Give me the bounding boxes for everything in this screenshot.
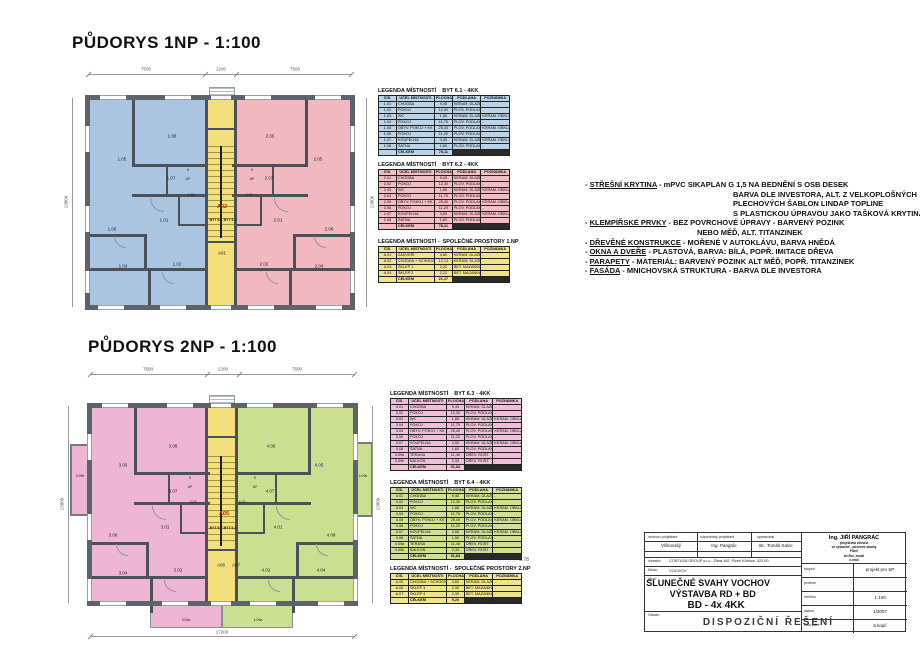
firm-address-lines: projektová činnostve výstavbě - pozemní … — [801, 541, 907, 562]
legend-cell: OBÝV. POKOJ + KK — [408, 429, 446, 435]
legend-cell: OBÝV. POKOJ + KK — [408, 518, 446, 524]
room-label: AP — [250, 177, 255, 181]
investor-value: CORTUSA GROUP s.r.o., Žitná 162, Plzeň K… — [669, 559, 768, 563]
legend-cell — [391, 465, 409, 471]
room-label: BYT 6.1 — [210, 218, 223, 222]
legend-header-cell: POZNÁMKA — [481, 96, 510, 102]
legend-cell: KERAM. OBKLAD v=2000 — [481, 212, 510, 218]
divider — [645, 575, 801, 576]
legend-cell: PLOV. PODLAHA — [452, 132, 481, 138]
legend-cell: BET. MAZANINA — [452, 265, 481, 271]
divider — [801, 563, 907, 564]
window — [211, 305, 231, 310]
drawing-sheet: PŮDORYS 1NP - 1:100 PŮDORYS 2NP - 1:100 … — [0, 0, 920, 649]
legend-cell: PLOV. PODLAHA — [452, 144, 481, 150]
note-line: S PLASTICKOU ÚPRAVOU JAKO TAŠKOVÁ KRYTIN… — [733, 209, 915, 219]
tb-row-label: datum — [804, 609, 814, 613]
legend-cell: KERAM. OBKLAD - KUCH. KOUT — [481, 126, 510, 132]
legend-cell: 78,11 — [434, 224, 452, 230]
dimension-value: 7500 — [292, 367, 302, 372]
dimension-value: 13800 — [60, 498, 65, 511]
legend-byt-6-4: LEGENDA MÍSTNOSTÍ BYT 6.4 - 4KKČÍS.ÚČEL … — [390, 480, 522, 560]
legend-cell: 91,84 — [446, 465, 464, 471]
legend-cell: DŘEV. ROŠT — [464, 548, 493, 554]
legend-header-cell: ÚČEL MÍSTNOSTI — [408, 399, 446, 405]
room-label: A07 — [232, 563, 240, 568]
legend-cell — [452, 224, 481, 230]
legend-cell: PLOV. PODLAHA — [464, 536, 493, 542]
drawn-by-value: Bc. Tomáš Kaloc — [759, 543, 792, 548]
room-label: 4.01 — [274, 525, 283, 530]
legend-cell: KERAM. DLAŽBA — [464, 441, 493, 447]
legend-cell — [379, 150, 397, 156]
legend-cell: DŘEV. ROŠT — [464, 542, 493, 548]
window — [100, 95, 126, 100]
room-label: K — [254, 476, 256, 480]
outer-wall — [85, 95, 355, 310]
legend-cell — [452, 277, 481, 283]
resp-designer-label: odpovědný projektant — [700, 535, 734, 539]
divider — [645, 557, 801, 558]
legend-header-cell: POZNÁMKA — [481, 170, 510, 176]
title-block: vedoucí projektant odpovědný projektant … — [644, 532, 906, 632]
legend-cell: BET. MAZANINA — [464, 586, 493, 592]
dimension-line — [72, 98, 73, 307]
room-label: A01 — [218, 251, 226, 256]
legend-cell: KERAM. DLAŽBA — [452, 253, 481, 259]
window — [100, 601, 126, 606]
legend-cell: PLOV. PODLAHA — [464, 524, 493, 530]
legend-cell — [464, 465, 493, 471]
window — [353, 514, 358, 540]
legend-cell: CELKEM — [396, 150, 434, 156]
legend-cell: KERAM. DLAŽBA — [464, 494, 493, 500]
legend-title: LEGENDA MÍSTNOSTÍ - SPOLEČNÉ PROSTORY 1.… — [378, 239, 510, 245]
note-line: - DŘEVĚNÉ KONSTRUKCE - MOŘENÉ V AUTOKLÁV… — [585, 238, 915, 248]
legend-cell: KERAM. DLAŽBA — [464, 405, 493, 411]
tb-row-value: 1/2007 — [873, 609, 887, 614]
legend-table: ČÍS.ÚČEL MÍSTNOSTIPLOCHA m²PODLAHAPOZNÁM… — [390, 573, 522, 604]
legend-cell: PLOV. PODLAHA — [452, 206, 481, 212]
legend-cell: KERAM. DLAŽBA — [452, 102, 481, 108]
legend-cell — [493, 554, 522, 560]
dimension-line — [68, 406, 69, 603]
dimension-value: 2200 — [218, 367, 228, 372]
legend-table: ČÍS.ÚČEL MÍSTNOSTIPLOCHA m²PODLAHAPOZNÁM… — [378, 169, 510, 230]
legend-cell: PLOV. PODLAHA — [464, 512, 493, 518]
note-line: - STŘEŠNÍ KRYTINA - mPVC SIKAPLAN G 1,5 … — [585, 180, 915, 190]
legend-cell: PLOV. PODLAHA — [464, 423, 493, 429]
legend-cell: PLOV. PODLAHA — [464, 500, 493, 506]
divider — [801, 577, 907, 578]
lead-designer-label: vedoucí projektant — [648, 535, 677, 539]
window — [211, 403, 231, 408]
window — [102, 403, 128, 408]
tb-row-value: 6 kopií — [873, 623, 886, 628]
legend-cell: 21,17 — [434, 277, 452, 283]
divider — [645, 551, 801, 552]
window — [165, 95, 191, 100]
legend-header-cell: PLOCHA m² — [446, 488, 464, 494]
window — [247, 403, 273, 408]
legend-cell: 78,11 — [434, 150, 452, 156]
project-name-line1: SLUNEČNÉ SVAHY VOCHOV — [646, 578, 770, 588]
window — [87, 579, 92, 601]
misto-label: Místo: — [648, 568, 658, 572]
divider — [853, 563, 854, 633]
room-label: 4.09b — [359, 474, 368, 478]
misto-value: VOCHOV — [669, 568, 686, 573]
outer-wall — [87, 403, 358, 606]
legend-header-cell: ÚČEL MÍSTNOSTI — [396, 96, 434, 102]
room-label: 2.01 — [274, 218, 283, 223]
legend-cell: KERAM. OBKLAD v=2000 — [493, 530, 522, 536]
divider — [645, 611, 801, 612]
room-label: 2.06 — [266, 134, 275, 139]
window — [315, 95, 341, 100]
room-label: 4.04 — [317, 568, 326, 573]
room-label: BYT 6.3 — [210, 526, 223, 530]
window — [248, 305, 274, 310]
legend-cell — [391, 598, 409, 604]
room-label: A06 — [217, 563, 225, 568]
legend-table: ČÍS.ÚČEL MÍSTNOSTIPLOCHA m²PODLAHAPOZNÁM… — [378, 246, 510, 283]
legend-cell: PLOV. PODLAHA — [452, 218, 481, 224]
room-label: 2.07 — [265, 176, 274, 181]
legend-cell: KERAM. OBKLAD v=1500 — [493, 506, 522, 512]
divider — [801, 591, 907, 592]
window — [160, 305, 186, 310]
dimension-line — [88, 74, 352, 75]
legend-cell: PLOV. PODLAHA — [464, 447, 493, 453]
legend-title: LEGENDA MÍSTNOSTÍ BYT 6.2 - 4KK — [378, 162, 510, 168]
legend-cell: KERAM. OBKLAD - KUCH. KOUT — [481, 200, 510, 206]
room-label: BYT 6.2 — [224, 218, 237, 222]
room-label: 4.09a — [254, 618, 263, 622]
dimension-line — [90, 374, 355, 375]
legend-table: ČÍS.ÚČEL MÍSTNOSTIPLOCHA m²PODLAHAPOZNÁM… — [390, 487, 522, 560]
window — [317, 403, 343, 408]
drawn-by-label: vypracoval — [757, 535, 774, 539]
legend-cell: KERAM. OBKLAD v=2000 — [493, 441, 522, 447]
note-line: - KLEMPÍŘSKÉ PRVKY - BEZ POVRCHOVÉ ÚPRAV… — [585, 218, 915, 228]
legend-header-cell: PLOCHA m² — [446, 399, 464, 405]
lead-designer-value: Vlčkovský — [661, 543, 681, 548]
legend-cell: PLOV. PODLAHA — [452, 194, 481, 200]
tb-row-label: profese — [804, 581, 816, 585]
firm-address-line: e-mail — [801, 558, 907, 562]
obsah-label: Obsah: — [648, 613, 660, 617]
divider — [645, 566, 801, 567]
legend-cell: 9,20 — [446, 598, 464, 604]
dimension-tick — [352, 372, 358, 378]
legend-common-1np: LEGENDA MÍSTNOSTÍ - SPOLEČNÉ PROSTORY 1.… — [378, 239, 510, 283]
divider — [697, 533, 698, 557]
legend-header-cell: PLOCHA m² — [434, 96, 452, 102]
legend-title: LEGENDA MÍSTNOSTÍ - SPOLEČNÉ PROSTORY 2.… — [390, 566, 522, 572]
legend-title: LEGENDA MÍSTNOSTÍ BYT 6.4 - 4KK — [390, 480, 522, 486]
legend-header-cell: POZNÁMKA — [493, 574, 522, 580]
legend-cell: KERAM. DLAŽBA — [464, 530, 493, 536]
legend-cell — [379, 224, 397, 230]
legend-cell: PLOV. PODLAHA — [452, 182, 481, 188]
window — [87, 514, 92, 540]
legend-cell: KERAM. OBKLAD v=1500 — [481, 188, 510, 194]
legend-byt-6-2: LEGENDA MÍSTNOSTÍ BYT 6.2 - 4KKČÍS.ÚČEL … — [378, 162, 510, 230]
room-label: AP — [186, 177, 191, 181]
legend-cell: PLOV. PODLAHA — [464, 411, 493, 417]
legend-cell: KERAM. DLAŽBA — [464, 580, 493, 586]
room-label: 3.04 — [119, 571, 128, 576]
note-line: PLECHOVÝCH ŠABLON LINDAP TOPLINE — [733, 199, 915, 209]
dimension-line — [366, 98, 367, 307]
dimension-value: 2200 — [216, 67, 226, 72]
tb-row-label: měřítko — [804, 595, 816, 599]
room-label: 3.09b — [76, 474, 85, 478]
room-label: 1.07 — [167, 176, 176, 181]
window — [85, 206, 90, 232]
legend-header-cell: PLOCHA m² — [446, 574, 464, 580]
legend-table: ČÍS.ÚČEL MÍSTNOSTIPLOCHA m²PODLAHAPOZNÁM… — [378, 95, 510, 156]
room-label: AP — [188, 485, 193, 489]
legend-header-cell: ÚČEL MÍSTNOSTI — [396, 247, 434, 253]
resp-designer-value: Ing. Pangrác — [711, 543, 737, 548]
legend-cell: KERAM. DLAŽBA — [464, 506, 493, 512]
floor-plan-2np: 3.053.083.07KAP3.033.013.063.043.024.064… — [60, 386, 390, 644]
room-label: 4.03 — [239, 500, 246, 504]
window — [85, 126, 90, 152]
legend-cell: KERAM. OBKLAD - KUCH. KOUT — [493, 429, 522, 435]
room-label: 1.03 — [188, 193, 195, 197]
window — [350, 126, 355, 152]
window — [250, 601, 276, 606]
room-label: 3.07 — [169, 489, 178, 494]
legend-cell — [379, 277, 397, 283]
tb-row-value: projekt pro SP — [866, 567, 895, 572]
legend-title: LEGENDA MÍSTNOSTÍ BYT 6.1 - 4KK — [378, 88, 510, 94]
legend-cell: BET. MAZANINA — [464, 592, 493, 598]
dimension-value: 13800 — [64, 196, 69, 209]
room-label: 4.07 — [266, 489, 275, 494]
note-line: - FASÁDA - MNICHOVSKÁ STRUKTURA - BARVA … — [585, 266, 915, 276]
legend-cell: KERAM. OBKLAD v=1500 — [481, 114, 510, 120]
window — [353, 434, 358, 460]
room-label: 3.02 — [174, 568, 183, 573]
dimension-tick — [352, 634, 358, 640]
legend-header-cell: PLOCHA m² — [434, 170, 452, 176]
legend-cell: 91,84 — [446, 554, 464, 560]
legend-header-cell: POZNÁMKA — [493, 399, 522, 405]
window — [350, 271, 355, 293]
project-name-line2: VÝSTAVBA RD + BD — [670, 589, 756, 599]
room-label: 2.02 — [260, 262, 269, 267]
legend-header-cell: PLOCHA m² — [434, 247, 452, 253]
legend-cell: PLOV. PODLAHA — [464, 518, 493, 524]
legend-cell — [493, 598, 522, 604]
dimension-value: 7500 — [290, 67, 300, 72]
dimension-value: 7500 — [141, 67, 151, 72]
legend-cell — [493, 465, 522, 471]
legend-cell: CELKEM — [408, 598, 446, 604]
room-label: 1.02 — [173, 262, 182, 267]
room-label: K — [251, 168, 253, 172]
room-label: 2.03 — [246, 193, 253, 197]
legend-cell: KERAM. DLAŽBA — [452, 176, 481, 182]
divider — [801, 605, 907, 606]
legend-common-2np: LEGENDA MÍSTNOSTÍ - SPOLEČNÉ PROSTORY 2.… — [390, 566, 522, 604]
legend-cell: KERAM. DLAŽBA — [464, 417, 493, 423]
room-label: 1.04 — [119, 264, 128, 269]
legend-cell: PLOV. PODLAHA — [452, 120, 481, 126]
note-line: BARVA DLE INVESTORA, ALT. Z VELKOPLOŠNÝC… — [733, 190, 915, 200]
room-label: 1.06 — [108, 227, 117, 232]
dimension-value: 7500 — [143, 367, 153, 372]
window — [98, 305, 124, 310]
room-label: 3.05 — [119, 463, 128, 468]
room-label: 4.05 — [315, 463, 324, 468]
tb-row-label: číslo paré — [804, 623, 820, 627]
window — [350, 206, 355, 232]
legend-cell: CELKEM — [408, 465, 446, 471]
legend-cell: BET. MAZANINA — [452, 271, 481, 277]
room-label: 2.05 — [314, 157, 323, 162]
legend-cell: KERAM. OBKLAD - KUCH. KOUT — [493, 518, 522, 524]
dimension-value: 17200 — [216, 630, 229, 635]
dimension-line — [372, 406, 373, 603]
room-label: 1.05 — [118, 157, 127, 162]
note-line: NEBO MĚĎ, ALT. TITANZINEK — [697, 228, 915, 238]
legend-cell: KERAM. DLAŽBA — [452, 114, 481, 120]
room-label: 1.08 — [168, 134, 177, 139]
legend-cell: KERAM. DLAŽBA — [452, 259, 481, 265]
note-line: - PARAPETY - MATERIÁL: BARVENÝ POZINK AL… — [585, 257, 915, 267]
legend-cell — [452, 150, 481, 156]
investor-label: investor: — [648, 559, 662, 563]
room-label: K — [189, 476, 191, 480]
legend-title: LEGENDA MÍSTNOSTÍ BYT 6.3 - 4KK — [390, 391, 522, 397]
window — [167, 403, 193, 408]
legend-cell — [481, 277, 510, 283]
divider — [645, 541, 801, 542]
legend-header-cell: ÚČEL MÍSTNOSTI — [408, 488, 446, 494]
firm-box: Ing. JIŘÍ PANGRÁC projektová činnostve v… — [801, 533, 907, 563]
floor-plan-1np: 1.051.081.07KAP1.031.011.061.041.022.062… — [70, 86, 370, 326]
legend-header-cell: POZNÁMKA — [493, 488, 522, 494]
dimension-line — [90, 636, 355, 637]
tb-row-label: stupeň — [804, 567, 815, 571]
room-label: A02 — [217, 204, 227, 210]
legend-cell: KERAM. DLAŽBA — [452, 188, 481, 194]
window — [353, 579, 358, 601]
room-label: 2.04 — [315, 264, 324, 269]
room-label: 3.09a — [182, 618, 191, 622]
room-label: 3.08 — [169, 444, 178, 449]
legend-cell: PLOV. PODLAHA — [452, 126, 481, 132]
legend-table: ČÍS.ÚČEL MÍSTNOSTIPLOCHA m²PODLAHAPOZNÁM… — [390, 398, 522, 471]
window — [211, 95, 231, 100]
legend-cell: CELKEM — [408, 554, 446, 560]
plan2-title: PŮDORYS 2NP - 1:100 — [88, 337, 277, 357]
legend-cell: CHODBA + SCHODIŠTĚ — [396, 259, 434, 265]
legend-header-cell: ÚČEL MÍSTNOSTI — [396, 170, 434, 176]
note-line: - OKNA A DVEŘE - PLASTOVÁ, BARVA: BÍLÁ, … — [585, 247, 915, 257]
dimension-tick — [349, 72, 355, 78]
dimension-value: 13800 — [376, 498, 381, 511]
room-label: 4.02 — [262, 568, 271, 573]
room-label: AP — [253, 485, 258, 489]
legend-cell: KERAM. DLAŽBA — [452, 212, 481, 218]
window — [211, 601, 231, 606]
legend-cell: PLOV. PODLAHA — [452, 108, 481, 114]
room-label: 4.08 — [327, 533, 336, 538]
legend-cell: CHODBA + SCHODIŠTĚ — [408, 580, 446, 586]
window — [87, 434, 92, 460]
legend-cell: PLOV. PODLAHA — [452, 200, 481, 206]
legend-byt-6-1: LEGENDA MÍSTNOSTÍ BYT 6.1 - 4KKČÍS.ÚČEL … — [378, 88, 510, 156]
legend-byt-6-3: LEGENDA MÍSTNOSTÍ BYT 6.3 - 4KKČÍS.ÚČEL … — [390, 391, 522, 471]
room-label: 3.06 — [109, 533, 118, 538]
legend-cell: CELKEM — [396, 224, 434, 230]
legend-cell — [481, 150, 510, 156]
window — [85, 271, 90, 293]
room-label: 4.06 — [267, 444, 276, 449]
room-label: 3.03 — [190, 500, 197, 504]
room-label: 3.01 — [161, 525, 170, 530]
legend-cell: OBÝV. POKOJ + KK — [396, 200, 434, 206]
legend-cell: CELKEM — [396, 277, 434, 283]
window — [245, 95, 271, 100]
tb-row-value: 1:100 — [874, 595, 885, 600]
legend-cell — [391, 554, 409, 560]
room-label: 2.08 — [325, 227, 334, 232]
legend-cell: KERAM. DLAŽBA — [452, 138, 481, 144]
project-name-line3: BD - 4x 4KK — [688, 600, 745, 611]
divider — [751, 533, 752, 557]
legend-cell: OBÝV. POKOJ + KK — [396, 126, 434, 132]
dimension-value: 13800 — [370, 196, 375, 209]
window — [318, 601, 344, 606]
legend-cell: KERAM. OBKLAD v=1500 — [493, 417, 522, 423]
window — [162, 601, 188, 606]
legend-cell — [464, 554, 493, 560]
window — [316, 305, 342, 310]
legend-cell — [464, 598, 493, 604]
material-notes: - STŘEŠNÍ KRYTINA - mPVC SIKAPLAN G 1,5 … — [585, 180, 915, 276]
room-label: A05 — [219, 511, 229, 517]
legend-cell: KERAM. OBKLAD v=2000 — [481, 138, 510, 144]
plan1-title: PŮDORYS 1NP - 1:100 — [72, 33, 261, 53]
room-label: K — [187, 168, 189, 172]
legend-cell: PLOV. PODLAHA — [464, 429, 493, 435]
legend-cell: DŘEV. ROŠT — [464, 459, 493, 465]
legend-cell — [481, 224, 510, 230]
legend-header-cell: POZNÁMKA — [481, 247, 510, 253]
room-label: 1.01 — [160, 218, 169, 223]
legend-cell: PLOV. PODLAHA — [464, 435, 493, 441]
room-label: BYT 6.4 — [224, 526, 237, 530]
legend-header-cell: ÚČEL MÍSTNOSTI — [408, 574, 446, 580]
legend-cell: DŘEV. ROŠT — [464, 453, 493, 459]
